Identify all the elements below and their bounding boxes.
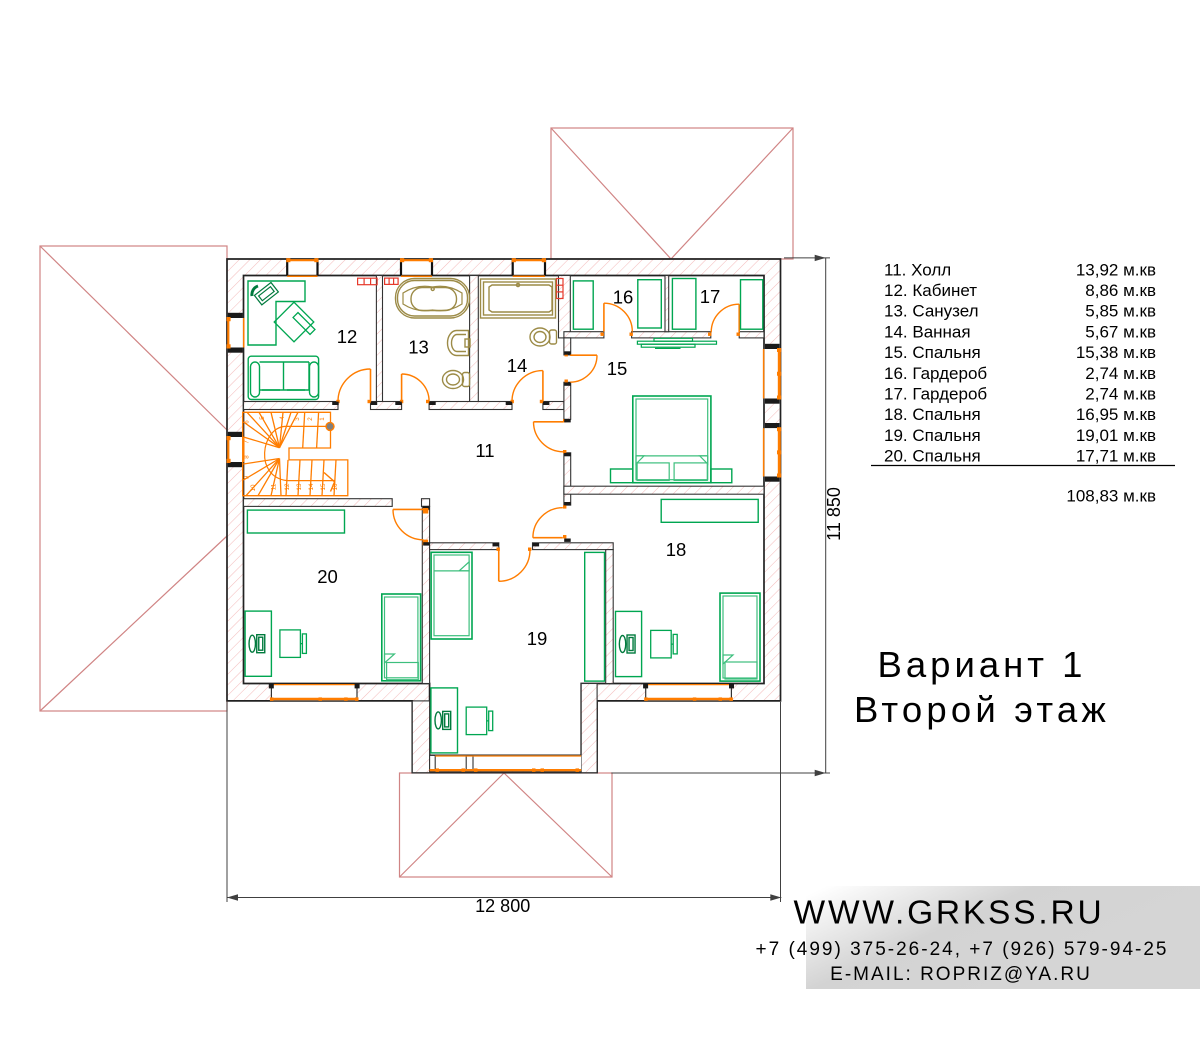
- svg-text:13. Санузел: 13. Санузел: [884, 302, 979, 321]
- svg-text:E-MAIL: ROPRIZ@YA.RU: E-MAIL: ROPRIZ@YA.RU: [830, 964, 1092, 985]
- svg-text:19,01 м.кв: 19,01 м.кв: [1076, 426, 1156, 445]
- svg-text:16: 16: [332, 483, 339, 490]
- svg-text:14. Ванная: 14. Ванная: [884, 322, 971, 341]
- svg-text:16. Гардероб: 16. Гардероб: [884, 364, 987, 383]
- svg-text:2,74 м.кв: 2,74 м.кв: [1085, 364, 1156, 383]
- svg-text:18. Спальня: 18. Спальня: [884, 405, 981, 424]
- svg-text:8,86 м.кв: 8,86 м.кв: [1085, 281, 1156, 300]
- svg-text:12 800: 12 800: [475, 896, 530, 916]
- svg-text:13: 13: [296, 483, 303, 490]
- svg-text:2: 2: [307, 417, 314, 421]
- svg-text:12: 12: [337, 326, 358, 347]
- svg-text:Второй этаж: Второй этаж: [854, 689, 1110, 730]
- svg-text:17,71 м.кв: 17,71 м.кв: [1076, 447, 1156, 466]
- svg-text:13: 13: [408, 337, 429, 358]
- svg-text:15: 15: [320, 483, 327, 490]
- svg-text:5: 5: [259, 416, 266, 420]
- svg-text:4: 4: [279, 416, 286, 420]
- svg-text:15. Спальня: 15. Спальня: [884, 343, 981, 362]
- svg-text:+7 (499) 375-26-24, +7 (926) 5: +7 (499) 375-26-24, +7 (926) 579-94-25: [756, 939, 1169, 960]
- svg-text:11 850: 11 850: [824, 487, 844, 541]
- svg-text:14: 14: [507, 355, 528, 376]
- svg-text:WWW.GRKSS.RU: WWW.GRKSS.RU: [794, 895, 1105, 932]
- svg-text:5,67 м.кв: 5,67 м.кв: [1085, 322, 1156, 341]
- svg-text:20. Спальня: 20. Спальня: [884, 447, 981, 466]
- svg-text:11. Холл: 11. Холл: [884, 260, 951, 279]
- svg-text:5,85 м.кв: 5,85 м.кв: [1085, 302, 1156, 321]
- svg-text:20: 20: [317, 566, 338, 587]
- svg-text:Вариант 1: Вариант 1: [878, 644, 1087, 685]
- svg-text:8: 8: [244, 455, 251, 459]
- svg-text:15: 15: [607, 358, 628, 379]
- svg-text:7: 7: [244, 440, 251, 444]
- svg-text:13,92 м.кв: 13,92 м.кв: [1076, 260, 1156, 279]
- svg-text:2,74 м.кв: 2,74 м.кв: [1085, 385, 1156, 404]
- svg-text:10: 10: [250, 484, 257, 491]
- svg-text:14: 14: [308, 483, 315, 490]
- svg-text:19. Спальня: 19. Спальня: [884, 426, 981, 445]
- svg-text:16,95 м.кв: 16,95 м.кв: [1076, 405, 1156, 424]
- svg-text:9: 9: [244, 475, 251, 479]
- svg-text:12. Кабинет: 12. Кабинет: [884, 281, 977, 300]
- svg-text:1: 1: [319, 417, 326, 421]
- svg-text:108,83 м.кв: 108,83 м.кв: [1066, 487, 1156, 506]
- svg-text:17. Гардероб: 17. Гардероб: [884, 385, 987, 404]
- svg-text:18: 18: [666, 539, 687, 560]
- svg-text:11: 11: [271, 483, 278, 490]
- svg-text:3: 3: [294, 417, 301, 421]
- svg-text:11: 11: [475, 440, 494, 461]
- svg-text:6: 6: [244, 420, 251, 424]
- svg-text:19: 19: [527, 628, 548, 649]
- svg-text:15,38 м.кв: 15,38 м.кв: [1076, 343, 1156, 362]
- svg-text:12: 12: [284, 483, 291, 490]
- svg-text:16: 16: [613, 287, 634, 308]
- svg-text:17: 17: [700, 286, 721, 307]
